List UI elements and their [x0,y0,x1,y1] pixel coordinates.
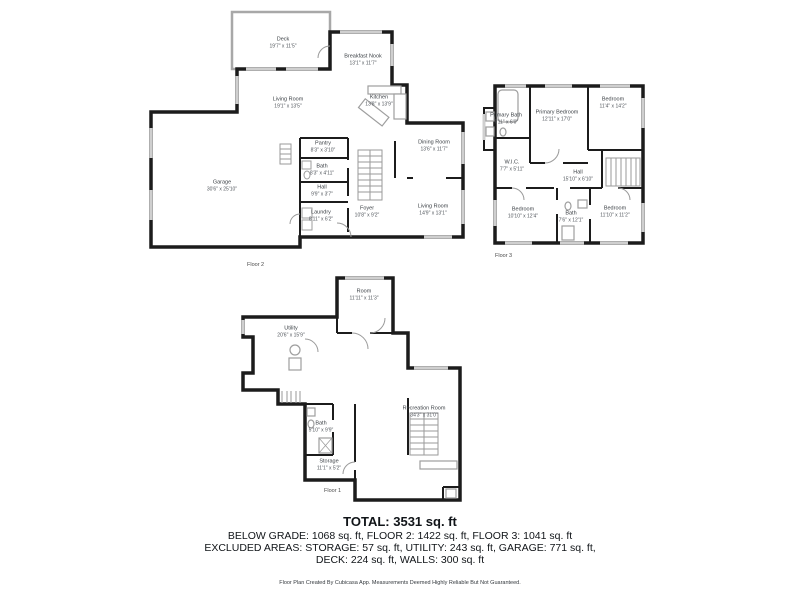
room-label-dining-room: Dining Room 13'6" x 11'7" [418,140,450,153]
floor-plan-document: { "colors": { "wall": "#1c1c1c", "window… [0,0,800,600]
room-label-recreation-room: Recreation Room 34'3" x 31'0" [403,406,446,419]
room-label-bath-f2: Bath 8'3" x 4'11" [310,164,334,177]
floor-1-walls [243,278,460,500]
disclaimer-text: Floor Plan Created By Cubicasa App. Meas… [0,580,800,586]
room-label-hall-f2: Hall 9'9" x 3'7" [311,185,333,198]
area-summary: TOTAL: 3531 sq. ft BELOW GRADE: 1068 sq.… [0,514,800,566]
room-label-wic: W.I.C. 7'7" x 5'11" [500,160,524,173]
room-label-garage: Garage 30'6" x 25'10" [207,180,237,193]
room-label-kitchen: Kitchen 13'8" x 13'9" [365,95,392,108]
room-label-storage: Storage 11'1" x 5'2" [317,459,341,472]
room-label-laundry: Laundry 8'11" x 6'2" [309,210,333,223]
floor-areas-text: BELOW GRADE: 1068 sq. ft, FLOOR 2: 1422 … [0,530,800,542]
room-label-utility: Utility 20'6" x 15'9" [277,326,304,339]
room-label-breakfast-nook: Breakfast Nook 13'1" x 11'7" [344,54,382,67]
floor-1-caption: Floor 1 [324,488,341,494]
room-label-bath-f3: Bath 7'6" x 12'1" [559,211,584,224]
room-label-deck: Deck 19'7" x 11'5" [269,37,296,50]
floor-2-walls [151,12,463,247]
room-label-primary-bath: Primary Bath 7'11" x 6'0" [490,113,522,126]
room-label-bath-f1: Bath 5'10" x 9'9" [309,421,334,434]
floor-3-caption: Floor 3 [495,253,512,259]
total-area-text: TOTAL: 3531 sq. ft [0,514,800,529]
floorplan-drawing [0,0,800,600]
excluded-areas-text: EXCLUDED AREAS: STORAGE: 57 sq. ft, UTIL… [0,542,800,554]
room-label-living-room: Living Room 19'1" x 13'5" [273,97,304,110]
room-label-bedroom-br: Bedroom 11'10" x 11'2" [600,206,629,219]
room-label-bedroom-bl: Bedroom 10'10" x 12'4" [508,207,538,220]
excluded-areas-text-2: DECK: 224 sq. ft, WALLS: 300 sq. ft [0,554,800,566]
room-label-hall-f3: Hall 15'10" x 6'10" [563,170,593,183]
room-label-pantry: Pantry 8'3" x 3'10" [311,141,336,154]
floor-2-caption: Floor 2 [247,262,264,268]
room-label-bedroom-tr: Bedroom 11'4" x 14'2" [599,97,626,110]
room-label-primary-bedroom: Primary Bedroom 12'11" x 17'0" [536,110,579,123]
room-label-foyer: Foyer 10'8" x 9'2" [355,206,380,219]
room-label-room: Room 11'11" x 11'3" [349,289,378,302]
room-label-living-room-2: Living Room 14'9" x 13'1" [418,204,449,217]
